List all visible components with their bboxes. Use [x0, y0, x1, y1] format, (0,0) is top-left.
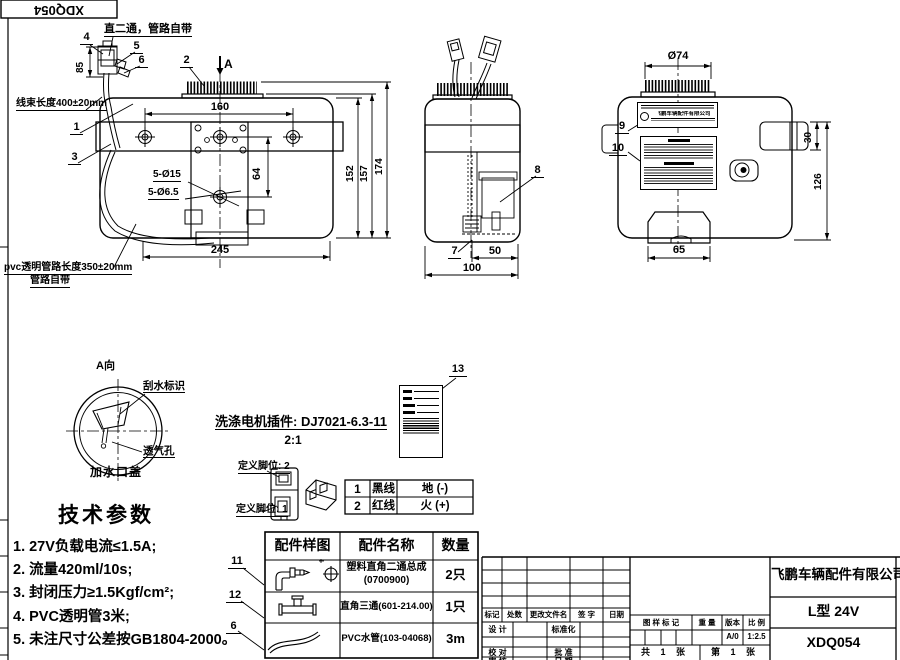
dim-126: 126	[814, 173, 825, 190]
dim-cap-diameter: Ø74	[660, 51, 696, 63]
dim-holes-small: 5-Ø6.5	[148, 188, 179, 200]
warning-title-bar	[668, 139, 690, 142]
dim-245: 245	[200, 245, 240, 257]
cap-detail-vent-label: 透气孔	[143, 446, 175, 458]
cap-detail-wiper-label: 刮水标识	[143, 381, 185, 393]
pin-row2-no: 2	[345, 500, 370, 513]
corner-code: XDQ054	[1, 1, 117, 17]
parts-header-name: 配件名称	[340, 538, 433, 553]
tb-sheet-no: 第 1 张	[700, 648, 770, 657]
note-straight-fitting: 直二通，管路自带	[104, 24, 192, 37]
sticker-paragraph	[403, 418, 439, 434]
callout-9: 9	[615, 121, 629, 134]
nameplate-logo-icon	[640, 112, 649, 121]
pin-row1-no: 1	[345, 483, 370, 496]
tech-param-1: 1. 27V负载电流≤1.5A;	[13, 540, 156, 555]
nameplate-subtext	[651, 118, 715, 121]
parts-row2-name: 直角三通(601-214.00)	[340, 602, 433, 612]
warning-label	[640, 136, 717, 190]
pin-row2-wire: 红线	[370, 500, 397, 512]
callout-11: 11	[228, 556, 246, 569]
connector-pin2-label: 定义脚位: 2	[238, 462, 290, 474]
cap-detail-view-label: A向	[96, 361, 115, 373]
callout-3: 3	[68, 152, 81, 165]
pin-row1-func: 地 (-)	[397, 483, 473, 495]
dim-65: 65	[664, 245, 694, 257]
tech-param-4: 4. PVC透明管3米;	[13, 610, 130, 625]
tb-stamp-scale-label: 比 例	[743, 619, 770, 627]
cap-detail-caption: 加水口盖	[90, 466, 142, 479]
nameplate-company: 飞鹏车辆配件有限公司	[651, 111, 715, 117]
tb-company: 飞鹏车辆配件有限公司	[771, 568, 896, 582]
warning-en-text	[644, 167, 713, 185]
parts-header-sketch: 配件样图	[265, 538, 340, 553]
dim-157: 157	[360, 165, 371, 182]
tb-rev-sign: 签 字	[570, 611, 603, 619]
connector-pin1-label: 定义脚位: 1	[236, 505, 288, 517]
product-sticker	[399, 385, 443, 458]
callout-5: 5	[130, 41, 143, 54]
tb-rev-date: 日期	[603, 611, 630, 619]
tb-role-design: 设 计	[482, 626, 513, 634]
callout-2: 2	[180, 55, 193, 68]
callout-6b: 6	[226, 621, 241, 634]
tb-rev-count: 处数	[502, 611, 527, 619]
warning-cn-text	[644, 144, 713, 160]
tb-stamp-mark: 图 样 标 记	[630, 619, 692, 627]
dim-85: 85	[76, 62, 87, 73]
parts-row3-qty: 3m	[433, 632, 478, 646]
dim-100: 100	[456, 263, 488, 275]
tech-param-3: 3. 封闭压力≥1.5Kgf/cm²;	[13, 586, 174, 601]
dim-160: 160	[202, 102, 238, 114]
dim-152: 152	[346, 165, 357, 182]
tb-product: L型 24V	[771, 604, 896, 619]
tb-rev-file: 更改文件名	[527, 611, 570, 619]
dim-30: 30	[804, 132, 815, 143]
parts-row2-qty: 1只	[433, 600, 478, 614]
nameplate-label: 飞鹏车辆配件有限公司	[637, 102, 718, 128]
callout-6: 6	[135, 55, 148, 68]
callout-8: 8	[531, 165, 544, 178]
warning-attention-bar	[664, 162, 694, 165]
parts-row1-name: 塑料直角二通总成	[340, 563, 433, 574]
tech-param-5: 5. 未注尺寸公差按GB1804-2000。	[13, 633, 236, 648]
callout-7: 7	[448, 246, 461, 259]
tech-param-2: 2. 流量420ml/10s;	[13, 563, 132, 578]
pin-row2-func: 火 (+)	[397, 500, 473, 512]
tb-version-value: A/0	[722, 633, 743, 641]
parts-row1-qty: 2只	[433, 568, 478, 582]
pin-row1-wire: 黑线	[370, 483, 397, 495]
tb-drawing-no: XDQ054	[771, 635, 896, 650]
drawing-sheet: 飞鹏车辆配件有限公司 XDQ054 直二通，管路自带 4 5 6 85 线束长度…	[0, 0, 900, 660]
line-art	[0, 0, 900, 660]
note-harness-length: 线束长度400±20mm	[16, 99, 107, 111]
parts-sketches	[268, 559, 339, 653]
dim-64: 64	[252, 168, 264, 180]
tb-role-standardize: 标准化	[547, 626, 580, 634]
dim-holes-large: 5-Ø15	[153, 170, 181, 182]
side-view-art	[425, 36, 520, 242]
tb-rev-mark: 标记	[482, 611, 502, 619]
callout-1: 1	[70, 122, 83, 135]
connector-scale: 2:1	[270, 434, 316, 447]
dim-50: 50	[482, 246, 508, 258]
tech-params-title: 技术参数	[58, 505, 154, 527]
tb-scale-value: 1:2.5	[743, 633, 770, 641]
note-pvc-line1: pvc透明管路长度350±20mm	[4, 263, 132, 275]
leader-lines	[78, 37, 641, 650]
parts-header-qty: 数量	[433, 538, 478, 553]
tb-stamp-version-label: 版本	[722, 619, 743, 627]
callout-12: 12	[226, 590, 244, 603]
tb-stamp-weight: 重 量	[692, 619, 722, 627]
note-pvc-line2: 管路自带	[30, 276, 70, 288]
callout-10: 10	[609, 143, 627, 156]
connector-title: 洗涤电机插件: DJ7021-6.3-11	[215, 415, 387, 430]
callout-4: 4	[80, 32, 93, 45]
callout-13: 13	[449, 364, 467, 377]
parts-row1-code: (0700900)	[340, 576, 433, 587]
parts-row3-name: PVC水管(103-04068)	[340, 634, 433, 644]
nameplate-top-text	[641, 105, 714, 110]
section-label-a: A	[224, 58, 233, 71]
tb-sheet-total: 共 1 张	[630, 648, 700, 657]
dim-174: 174	[375, 158, 386, 175]
